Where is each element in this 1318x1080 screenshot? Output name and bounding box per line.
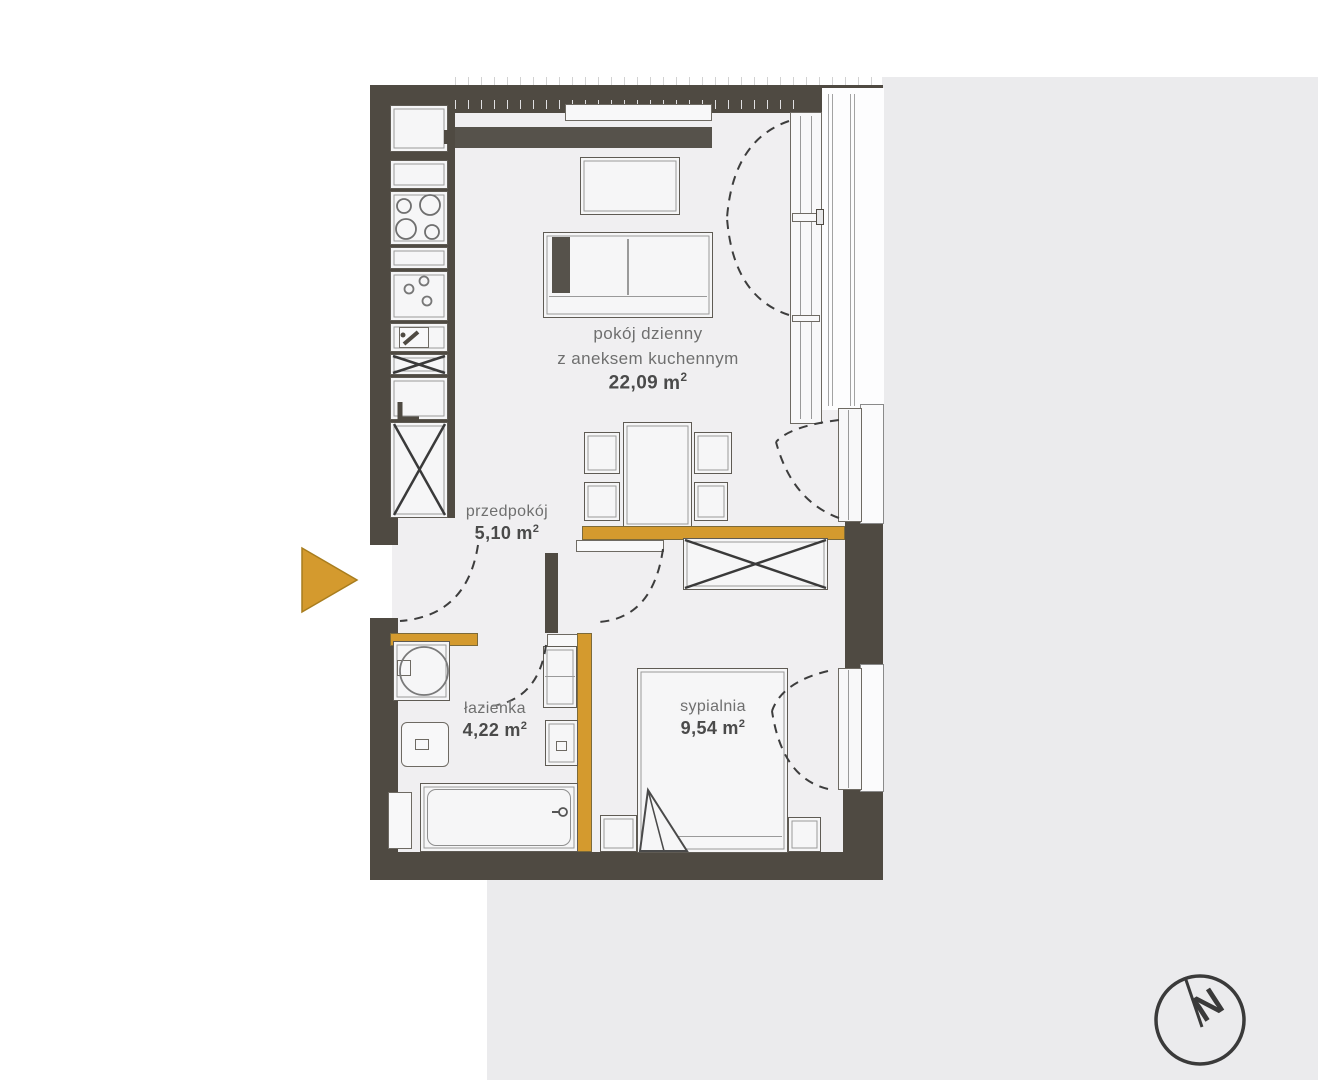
floor-plan-canvas: N pokój dzienny z aneksem kuchennym 22,0…: [0, 0, 1318, 1080]
balcony-door-swing-upper: [727, 121, 789, 218]
counter-corner-bracket: [400, 402, 419, 419]
balcony-door-swing-lower: [727, 218, 789, 315]
bathroom-area: 4,22m2: [463, 720, 528, 741]
label-living-room: pokój dzienny z aneksem kuchennym 22,09m…: [548, 322, 748, 395]
bedroom-door-swing: [599, 549, 663, 622]
bathtub-faucet-icon: [552, 808, 567, 816]
hallway-name: przedpokój: [466, 500, 548, 523]
label-hallway: przedpokój 5,10m2: [427, 500, 587, 544]
plan-line-overlay: N: [0, 0, 1318, 1080]
water-droplets-icon: [405, 277, 432, 306]
compass-north-letter: N: [1185, 980, 1231, 1030]
living-room-name-line2: z aneksem kuchennym: [557, 347, 738, 372]
blanket-fold-icon: [640, 790, 687, 851]
washbasin-bowl-icon: [400, 647, 448, 695]
label-bedroom: sypialnia 9,54m2: [638, 695, 788, 739]
entrance-arrow-icon: [302, 548, 357, 612]
hallway-area: 5,10m2: [475, 523, 540, 544]
dining-window-swing-upper: [776, 420, 839, 442]
hob-burners-icon: [396, 195, 440, 239]
bathroom-name: łazienka: [464, 697, 526, 720]
living-room-area: 22,09m2: [609, 371, 688, 394]
sink-tap-icon: [401, 332, 419, 344]
bedroom-area: 9,54m2: [681, 718, 746, 739]
dining-window-swing-lower: [776, 442, 839, 518]
compass-icon: N: [1156, 976, 1244, 1064]
label-bathroom: łazienka 4,22m2: [420, 697, 570, 741]
entrance-door-swing: [400, 545, 478, 621]
living-room-name-line1: pokój dzienny: [593, 322, 702, 347]
bedroom-name: sypialnia: [680, 695, 746, 718]
door-swing-arcs: [400, 121, 839, 789]
